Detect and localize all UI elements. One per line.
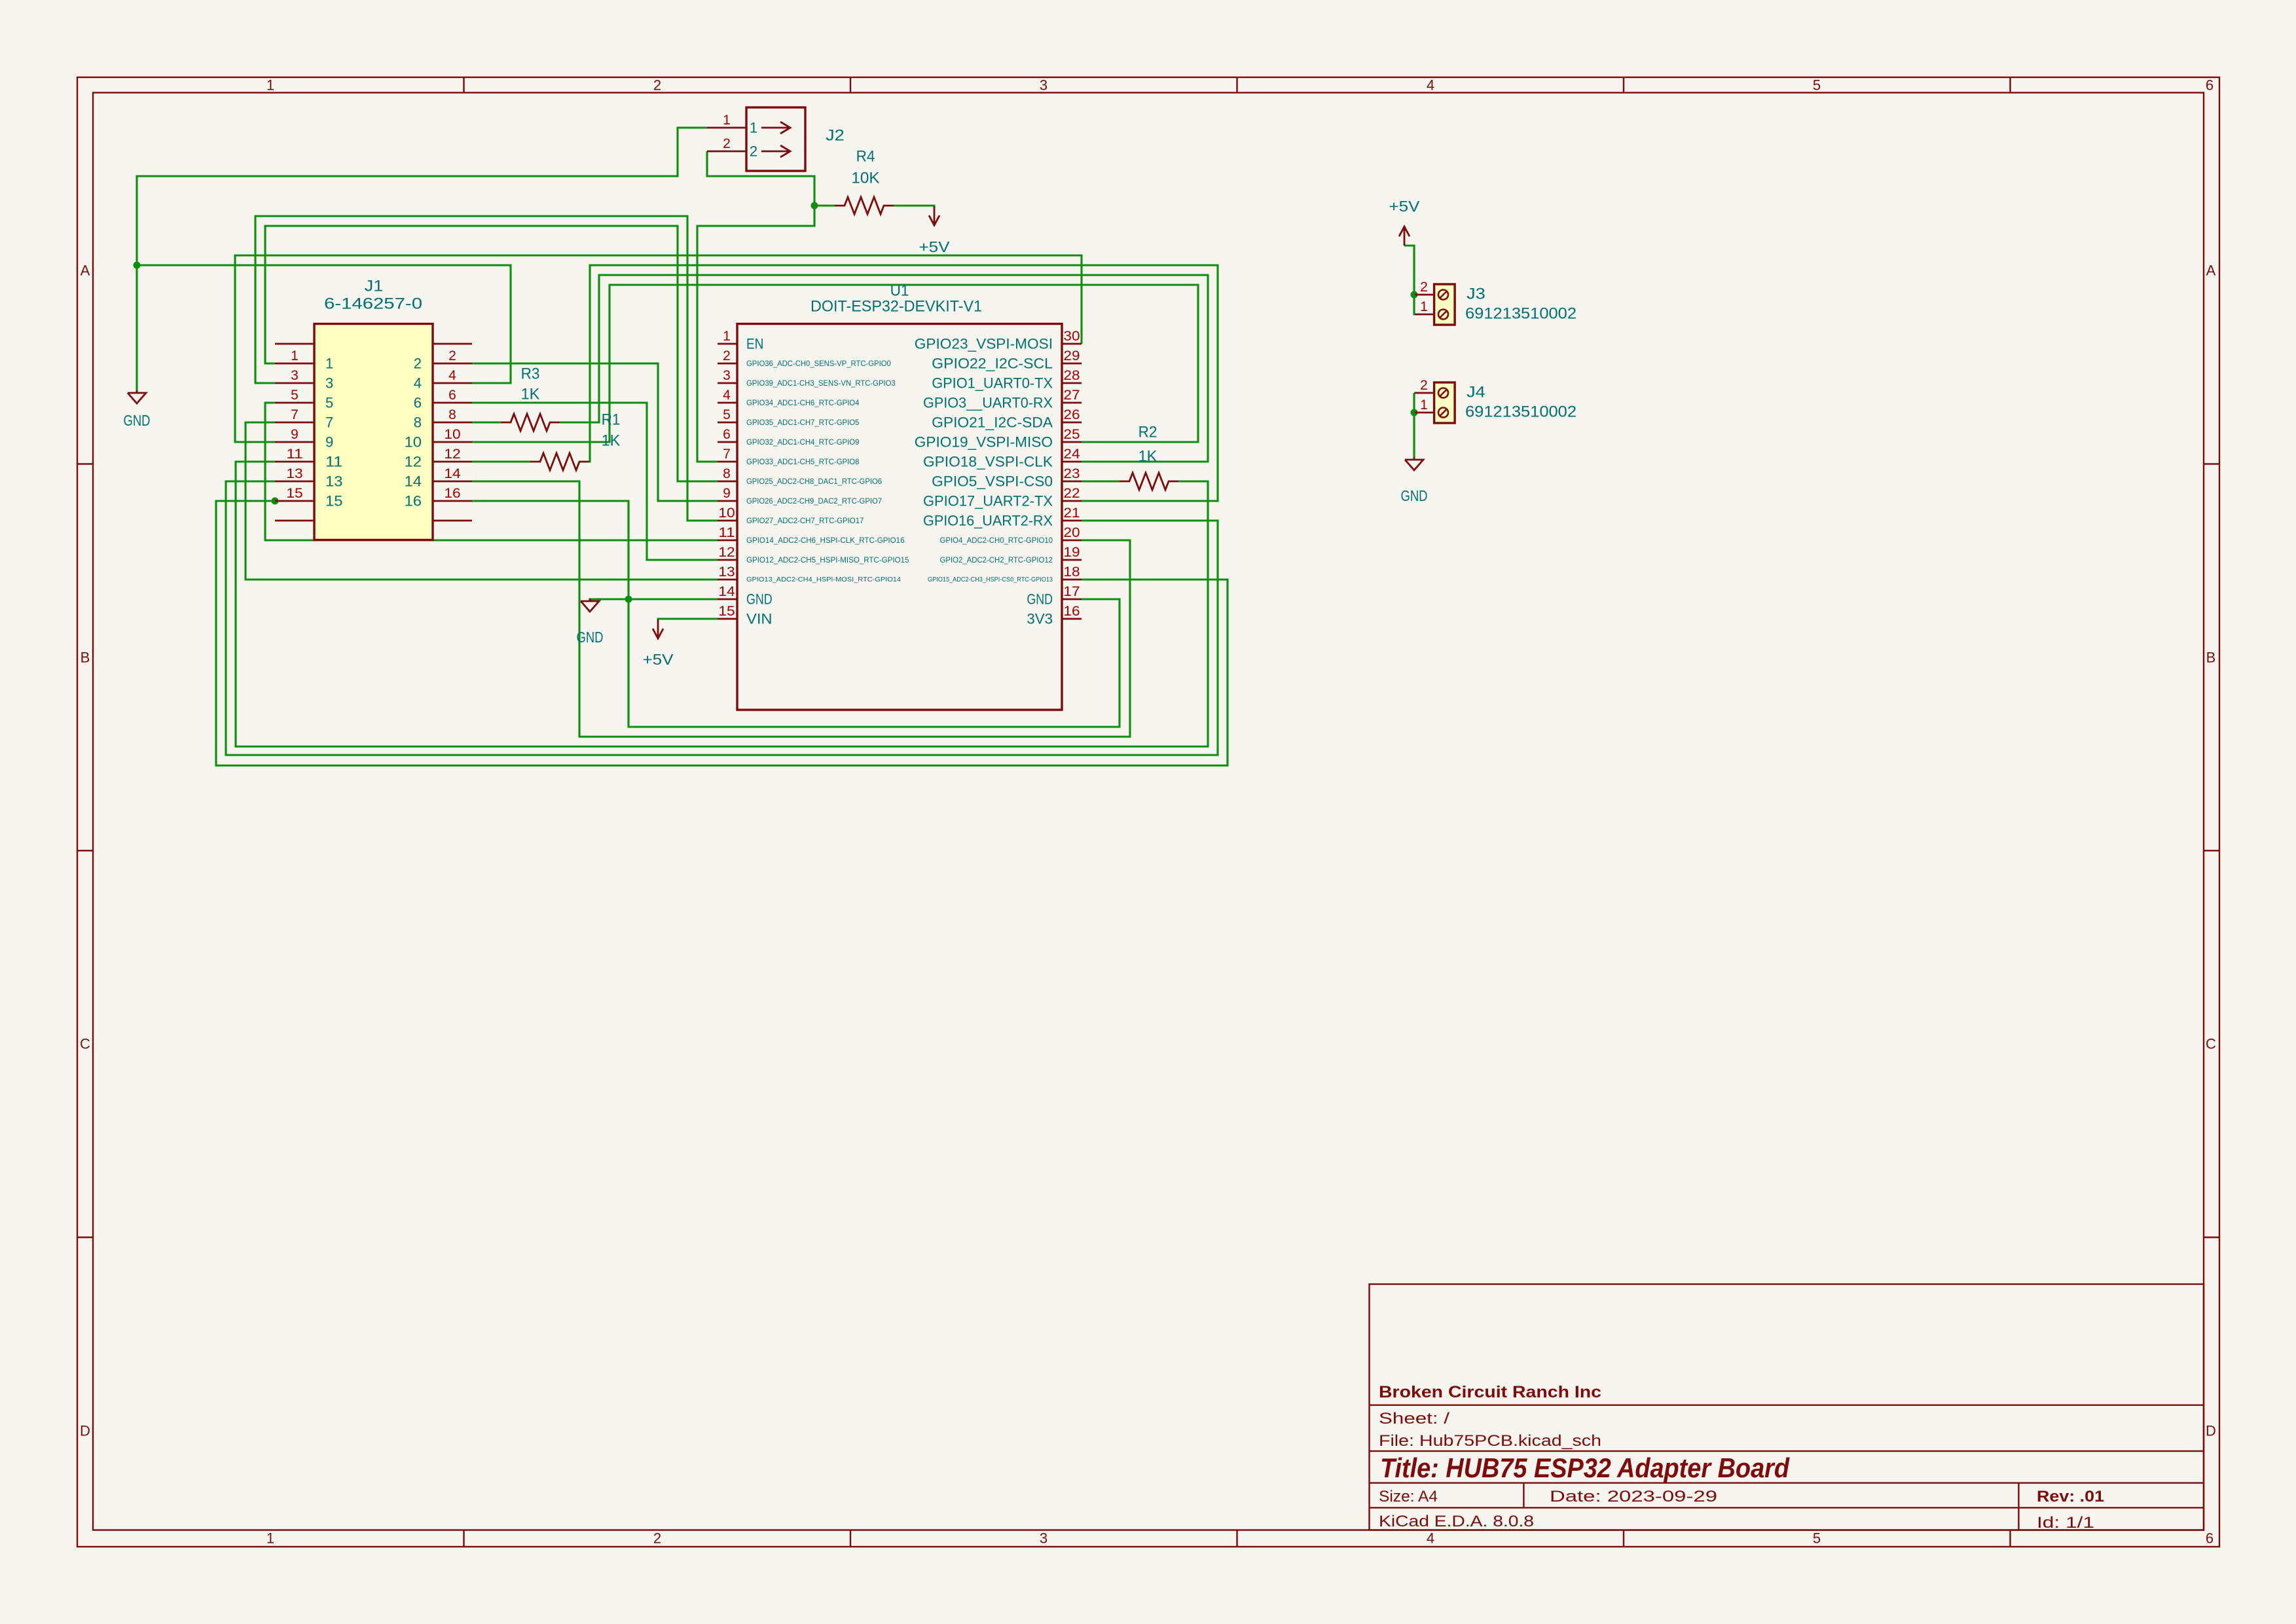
svg-text:C: C <box>2206 1036 2216 1052</box>
svg-text:J1: J1 <box>365 278 384 295</box>
svg-text:Title: HUB75 ESP32 Adapter Boa: Title: HUB75 ESP32 Adapter Board <box>1380 1452 1790 1483</box>
svg-text:14: 14 <box>405 473 422 490</box>
svg-text:B: B <box>2206 650 2216 666</box>
svg-text:18: 18 <box>1063 564 1080 580</box>
svg-text:16: 16 <box>1063 604 1080 619</box>
svg-text:2: 2 <box>723 136 731 151</box>
svg-text:14: 14 <box>444 466 461 481</box>
svg-text:KiCad E.D.A. 8.0.8: KiCad E.D.A. 8.0.8 <box>1379 1513 1534 1530</box>
svg-text:3: 3 <box>325 375 333 392</box>
svg-text:13: 13 <box>286 466 302 481</box>
svg-text:4: 4 <box>1427 77 1434 94</box>
svg-text:11: 11 <box>286 447 302 462</box>
svg-text:3: 3 <box>1040 1530 1048 1547</box>
svg-text:Id: 1/1: Id: 1/1 <box>2037 1514 2094 1532</box>
svg-text:3: 3 <box>291 368 299 383</box>
svg-text:6: 6 <box>414 395 422 411</box>
svg-text:24: 24 <box>1063 447 1080 462</box>
svg-text:2: 2 <box>414 356 422 372</box>
svg-text:D: D <box>80 1423 90 1439</box>
svg-text:+5V: +5V <box>1389 198 1421 215</box>
svg-text:5: 5 <box>1813 1530 1821 1547</box>
svg-text:25: 25 <box>1063 427 1080 442</box>
svg-text:12: 12 <box>444 447 460 462</box>
svg-text:12: 12 <box>718 545 735 560</box>
svg-text:3: 3 <box>1040 77 1048 94</box>
svg-text:6: 6 <box>2206 1530 2214 1547</box>
svg-text:A: A <box>2206 263 2216 279</box>
svg-text:11: 11 <box>718 525 735 540</box>
svg-text:GPIO12_ADC2-CH5_HSPI-MISO_RTC-: GPIO12_ADC2-CH5_HSPI-MISO_RTC-GPIO15 <box>746 555 909 564</box>
svg-text:4: 4 <box>414 375 422 392</box>
svg-text:2: 2 <box>1420 280 1428 295</box>
svg-text:R1: R1 <box>602 411 621 429</box>
svg-text:1: 1 <box>291 348 299 363</box>
svg-text:1: 1 <box>266 77 274 94</box>
svg-text:D: D <box>2206 1423 2216 1439</box>
svg-text:+5V: +5V <box>919 238 951 255</box>
svg-text:GPIO14_ADC2-CH6_HSPI-CLK_RTC-G: GPIO14_ADC2-CH6_HSPI-CLK_RTC-GPIO16 <box>746 536 905 545</box>
svg-text:4: 4 <box>723 388 731 403</box>
svg-text:17: 17 <box>1063 584 1080 599</box>
svg-text:GPIO13_ADC2-CH4_HSPI-MOSI_RTC-: GPIO13_ADC2-CH4_HSPI-MOSI_RTC-GPIO14 <box>746 576 901 583</box>
svg-text:29: 29 <box>1063 348 1080 363</box>
svg-text:GPIO33_ADC1-CH5_RTC-GPIO8: GPIO33_ADC1-CH5_RTC-GPIO8 <box>746 457 860 466</box>
svg-text:GPIO3__UART0-RX: GPIO3__UART0-RX <box>923 395 1053 411</box>
svg-text:2: 2 <box>1420 378 1428 393</box>
svg-text:20: 20 <box>1063 525 1080 540</box>
svg-text:14: 14 <box>718 584 735 599</box>
svg-text:GPIO15_ADC2-CH3_HSPI-CS0_RTC-G: GPIO15_ADC2-CH3_HSPI-CS0_RTC-GPIO13 <box>928 576 1053 583</box>
svg-text:+5V: +5V <box>643 651 674 668</box>
svg-text:5: 5 <box>1813 77 1821 94</box>
svg-text:GPIO25_ADC2-CH8_DAC1_RTC-GPIO6: GPIO25_ADC2-CH8_DAC1_RTC-GPIO6 <box>746 477 882 486</box>
svg-text:GPIO21_I2C-SDA: GPIO21_I2C-SDA <box>932 415 1053 431</box>
svg-text:1: 1 <box>1420 397 1428 413</box>
svg-text:VIN: VIN <box>746 611 773 627</box>
svg-text:GPIO22_I2C-SCL: GPIO22_I2C-SCL <box>932 356 1053 372</box>
svg-text:1: 1 <box>723 329 731 344</box>
svg-text:9: 9 <box>723 486 731 501</box>
svg-text:8: 8 <box>414 415 422 431</box>
svg-text:GPIO34_ADC1-CH6_RTC-GPIO4: GPIO34_ADC1-CH6_RTC-GPIO4 <box>746 398 860 407</box>
svg-text:GPIO23_VSPI-MOSI: GPIO23_VSPI-MOSI <box>915 336 1053 352</box>
svg-text:6: 6 <box>2206 77 2214 94</box>
svg-text:GPIO4_ADC2-CH0_RTC-GPIO10: GPIO4_ADC2-CH0_RTC-GPIO10 <box>940 536 1053 545</box>
svg-text:26: 26 <box>1063 407 1080 422</box>
svg-text:4: 4 <box>1427 1530 1434 1547</box>
svg-text:2: 2 <box>723 348 731 363</box>
svg-text:Rev: .01: Rev: .01 <box>2037 1488 2104 1505</box>
svg-text:1: 1 <box>723 113 731 128</box>
svg-text:10: 10 <box>718 506 735 521</box>
svg-text:GPIO35_ADC1-CH7_RTC-GPIO5: GPIO35_ADC1-CH7_RTC-GPIO5 <box>746 418 860 427</box>
svg-text:R3: R3 <box>521 365 540 383</box>
svg-text:R4: R4 <box>856 148 875 166</box>
svg-text:1: 1 <box>266 1530 274 1547</box>
svg-text:Sheet: /: Sheet: / <box>1379 1410 1449 1428</box>
svg-text:EN: EN <box>746 336 763 352</box>
svg-text:10: 10 <box>405 434 422 451</box>
svg-text:691213510002: 691213510002 <box>1465 305 1576 323</box>
svg-text:A: A <box>81 263 90 279</box>
svg-text:22: 22 <box>1063 486 1080 501</box>
svg-text:2: 2 <box>653 77 661 94</box>
svg-text:6-146257-0: 6-146257-0 <box>324 295 422 313</box>
svg-text:27: 27 <box>1063 388 1080 403</box>
svg-text:2: 2 <box>653 1530 661 1547</box>
svg-text:11: 11 <box>325 454 342 470</box>
svg-text:6: 6 <box>448 388 456 403</box>
svg-text:12: 12 <box>405 454 422 470</box>
svg-text:J4: J4 <box>1467 384 1485 401</box>
svg-text:3: 3 <box>723 368 731 383</box>
svg-text:7: 7 <box>325 415 333 431</box>
svg-text:Broken Circuit Ranch Inc: Broken Circuit Ranch Inc <box>1379 1383 1601 1401</box>
svg-text:GPIO1_UART0-TX: GPIO1_UART0-TX <box>932 375 1053 392</box>
svg-text:GND: GND <box>577 629 604 646</box>
svg-text:2: 2 <box>750 143 757 160</box>
svg-text:1K: 1K <box>1139 448 1157 466</box>
svg-text:13: 13 <box>325 473 342 490</box>
svg-text:28: 28 <box>1063 368 1080 383</box>
svg-text:19: 19 <box>1063 545 1080 560</box>
svg-text:GPIO18_VSPI-CLK: GPIO18_VSPI-CLK <box>923 454 1053 470</box>
svg-text:DOIT-ESP32-DEVKIT-V1: DOIT-ESP32-DEVKIT-V1 <box>811 298 982 316</box>
svg-text:1: 1 <box>325 356 333 372</box>
svg-text:GND: GND <box>746 591 773 608</box>
svg-text:1: 1 <box>750 120 757 136</box>
svg-text:U1: U1 <box>890 282 909 300</box>
svg-text:GPIO36_ADC-CH0_SENS-VP_RTC-GPI: GPIO36_ADC-CH0_SENS-VP_RTC-GPIO0 <box>746 359 891 368</box>
svg-text:1: 1 <box>1420 299 1428 314</box>
svg-text:GPIO32_ADC1-CH4_RTC-GPIO9: GPIO32_ADC1-CH4_RTC-GPIO9 <box>746 437 860 447</box>
svg-text:6: 6 <box>723 427 731 442</box>
svg-text:16: 16 <box>444 486 460 501</box>
svg-text:GND: GND <box>124 412 151 429</box>
svg-text:J2: J2 <box>826 127 845 145</box>
svg-text:8: 8 <box>448 407 456 422</box>
svg-text:GPIO17_UART2-TX: GPIO17_UART2-TX <box>923 493 1053 509</box>
svg-text:Size: A4: Size: A4 <box>1379 1488 1438 1505</box>
svg-text:23: 23 <box>1063 466 1080 481</box>
svg-text:2: 2 <box>448 348 456 363</box>
svg-text:3V3: 3V3 <box>1027 611 1053 627</box>
svg-text:GPIO26_ADC2-CH9_DAC2_RTC-GPIO7: GPIO26_ADC2-CH9_DAC2_RTC-GPIO7 <box>746 496 882 506</box>
svg-text:GPIO5_VSPI-CS0: GPIO5_VSPI-CS0 <box>932 473 1053 490</box>
svg-text:15: 15 <box>325 493 342 509</box>
svg-text:15: 15 <box>718 604 735 619</box>
svg-text:GPIO27_ADC2-CH7_RTC-GPIO17: GPIO27_ADC2-CH7_RTC-GPIO17 <box>746 516 864 525</box>
svg-text:GPIO16_UART2-RX: GPIO16_UART2-RX <box>923 513 1053 529</box>
svg-text:8: 8 <box>723 466 731 481</box>
svg-text:B: B <box>81 650 90 666</box>
svg-text:9: 9 <box>325 434 333 451</box>
svg-text:Date: 2023-09-29: Date: 2023-09-29 <box>1550 1488 1717 1505</box>
svg-text:7: 7 <box>291 407 299 422</box>
svg-text:7: 7 <box>723 447 731 462</box>
svg-text:16: 16 <box>405 493 422 509</box>
svg-text:9: 9 <box>291 427 299 442</box>
svg-text:10: 10 <box>444 427 460 442</box>
svg-text:15: 15 <box>286 486 302 501</box>
svg-text:C: C <box>80 1036 90 1052</box>
svg-text:21: 21 <box>1063 506 1080 521</box>
svg-text:10K: 10K <box>851 170 879 187</box>
svg-text:File: Hub75PCB.kicad_sch: File: Hub75PCB.kicad_sch <box>1379 1432 1601 1450</box>
svg-text:GND: GND <box>1401 487 1428 504</box>
svg-text:5: 5 <box>723 407 731 422</box>
svg-text:1K: 1K <box>602 432 621 450</box>
svg-text:13: 13 <box>718 564 735 580</box>
svg-text:5: 5 <box>325 395 333 411</box>
svg-text:GND: GND <box>1027 591 1053 608</box>
svg-text:J3: J3 <box>1467 286 1485 303</box>
svg-text:GPIO2_ADC2-CH2_RTC-GPIO12: GPIO2_ADC2-CH2_RTC-GPIO12 <box>940 555 1053 564</box>
svg-text:R2: R2 <box>1139 424 1157 441</box>
svg-text:GPIO19_VSPI-MISO: GPIO19_VSPI-MISO <box>915 434 1053 451</box>
svg-text:4: 4 <box>448 368 456 383</box>
svg-text:1K: 1K <box>521 386 540 403</box>
svg-text:GPIO39_ADC1-CH3_SENS-VN_RTC-GP: GPIO39_ADC1-CH3_SENS-VN_RTC-GPIO3 <box>746 378 896 388</box>
svg-text:691213510002: 691213510002 <box>1465 403 1576 421</box>
svg-text:30: 30 <box>1063 329 1080 344</box>
svg-text:5: 5 <box>291 388 299 403</box>
